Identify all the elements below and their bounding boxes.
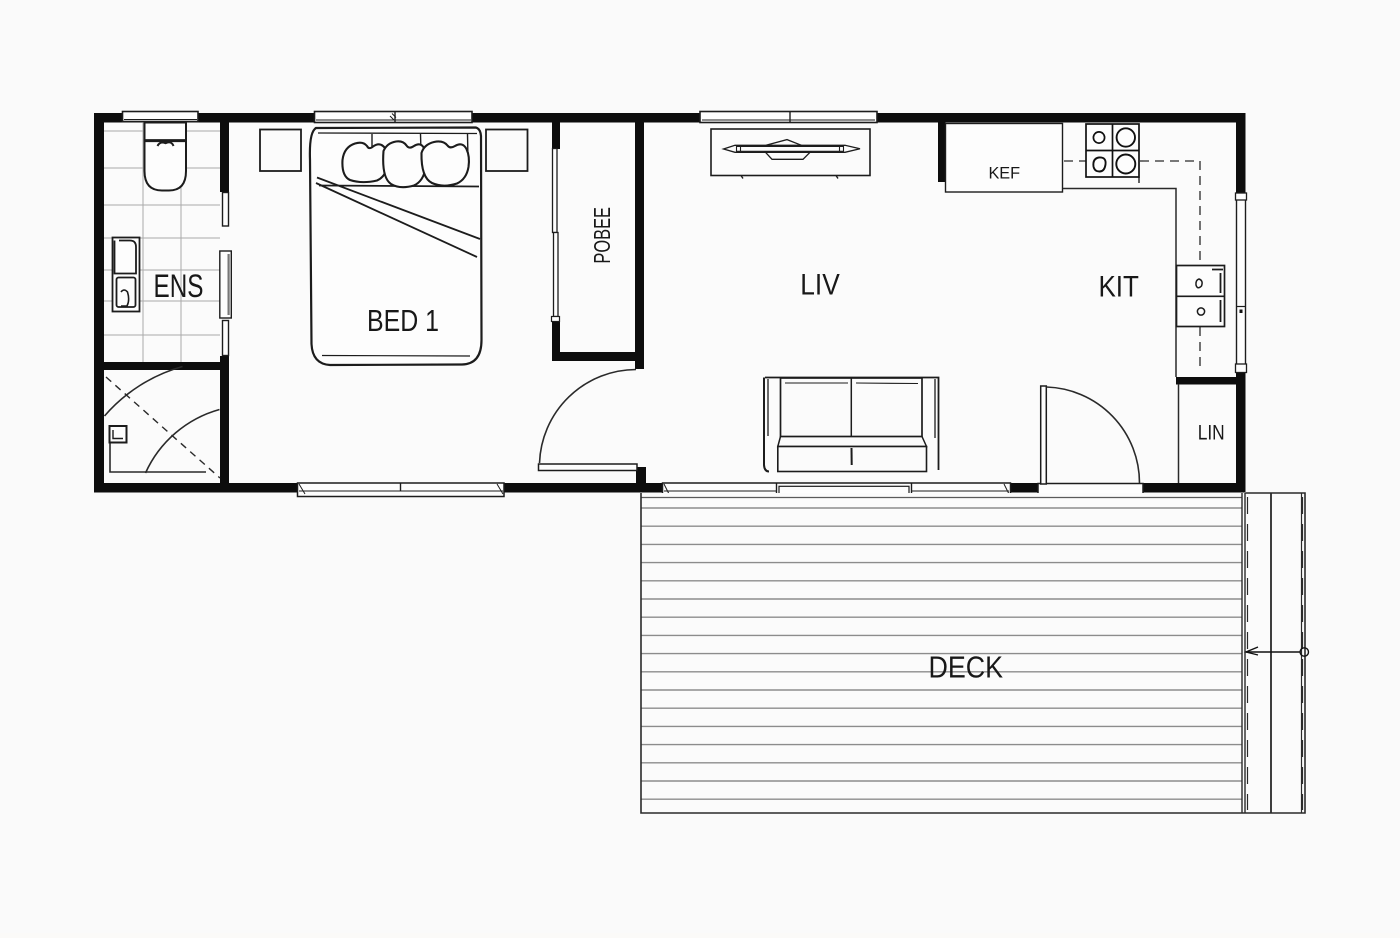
- svg-text:BED 1: BED 1: [367, 303, 439, 338]
- svg-text:LIV: LIV: [800, 269, 840, 302]
- svg-text:ENS: ENS: [154, 268, 204, 304]
- svg-text:KIT: KIT: [1098, 271, 1139, 304]
- svg-text:KEF: KEF: [988, 164, 1020, 182]
- svg-text:LIN: LIN: [1198, 422, 1225, 445]
- svg-text:DECK: DECK: [929, 650, 1004, 685]
- svg-text:POBEE: POBEE: [589, 207, 615, 264]
